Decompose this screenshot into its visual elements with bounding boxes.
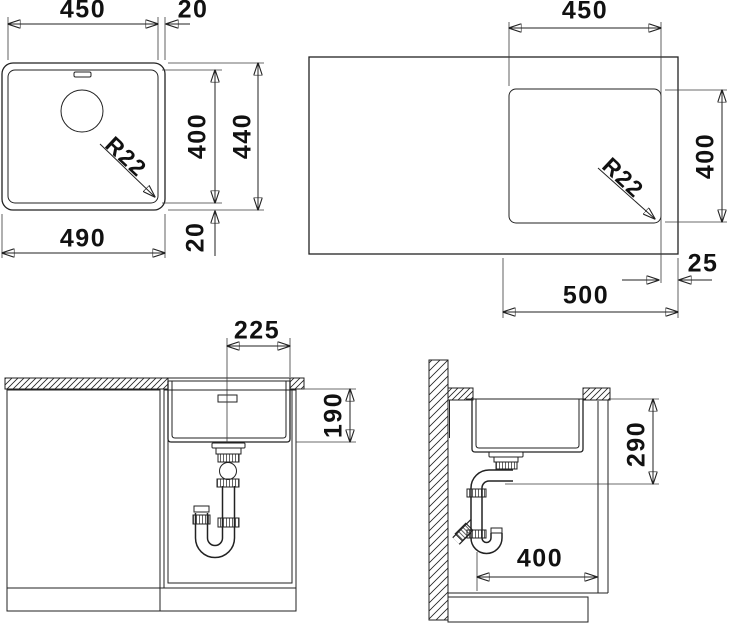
bowl-inner-side [476,399,579,448]
overflow-slot [74,72,91,77]
dim-bowl-width: 450 [60,0,106,23]
plinth-side [448,597,588,622]
dim-bowl-height: 400 [186,113,211,159]
dim-cutout-height: 400 [694,133,719,179]
dim-trap-distance: 400 [517,547,563,572]
wall-section [429,360,448,620]
technical-drawing-canvas: 450 20 400 440 490 20 R22 450 400 R22 25… [0,0,731,630]
trap-nut-side [467,530,486,538]
dim-cutout-width: 450 [562,0,608,24]
dim-edge-margin: 25 [688,252,719,277]
sink-top-view [2,17,264,258]
dim-drain-offset: 225 [234,319,280,344]
dim-rim-right: 20 [178,0,209,23]
trap-nut-left [193,515,210,524]
side-section-view [429,360,659,622]
countertop-outline [309,57,678,254]
trap-end-cap [491,528,502,533]
strainer-body-side [494,457,518,462]
plinth-front [7,588,296,611]
strainer-nut-side [496,462,517,469]
ball-joint [220,463,237,480]
pipe-nut [217,479,239,487]
countertop-section-left [5,378,168,389]
front-section-view [5,338,356,611]
dim-outer-width: 490 [60,227,106,252]
trap-cap [194,506,209,512]
drain-flange-side [489,452,523,457]
drain-flange [212,443,245,448]
countertop-cutout-view [309,22,727,318]
drain-trap-side [455,452,523,548]
overflow-slot-front [218,395,237,402]
cabinet-left [7,390,160,588]
sink-outer-outline [2,63,165,210]
drawing-geometry [0,0,731,630]
strainer-body [216,448,241,454]
strainer-nut [218,454,239,462]
dim-outer-height: 440 [231,113,256,159]
trap-nut-right [218,518,239,527]
countertop-side-left [448,388,473,400]
cutout-outline [509,89,661,223]
countertop-section-right [290,378,304,389]
dim-outlet-depth: 290 [625,421,650,467]
dim-bowl-depth: 190 [322,392,347,438]
elbow-nut [467,489,486,497]
dim-rim-bottom: 20 [184,222,209,253]
drain-hole [61,90,103,132]
countertop-side-right [583,388,610,400]
drain-trap-front [193,443,245,552]
dim-span: 500 [563,284,609,309]
bowl-outer-side [472,399,583,452]
